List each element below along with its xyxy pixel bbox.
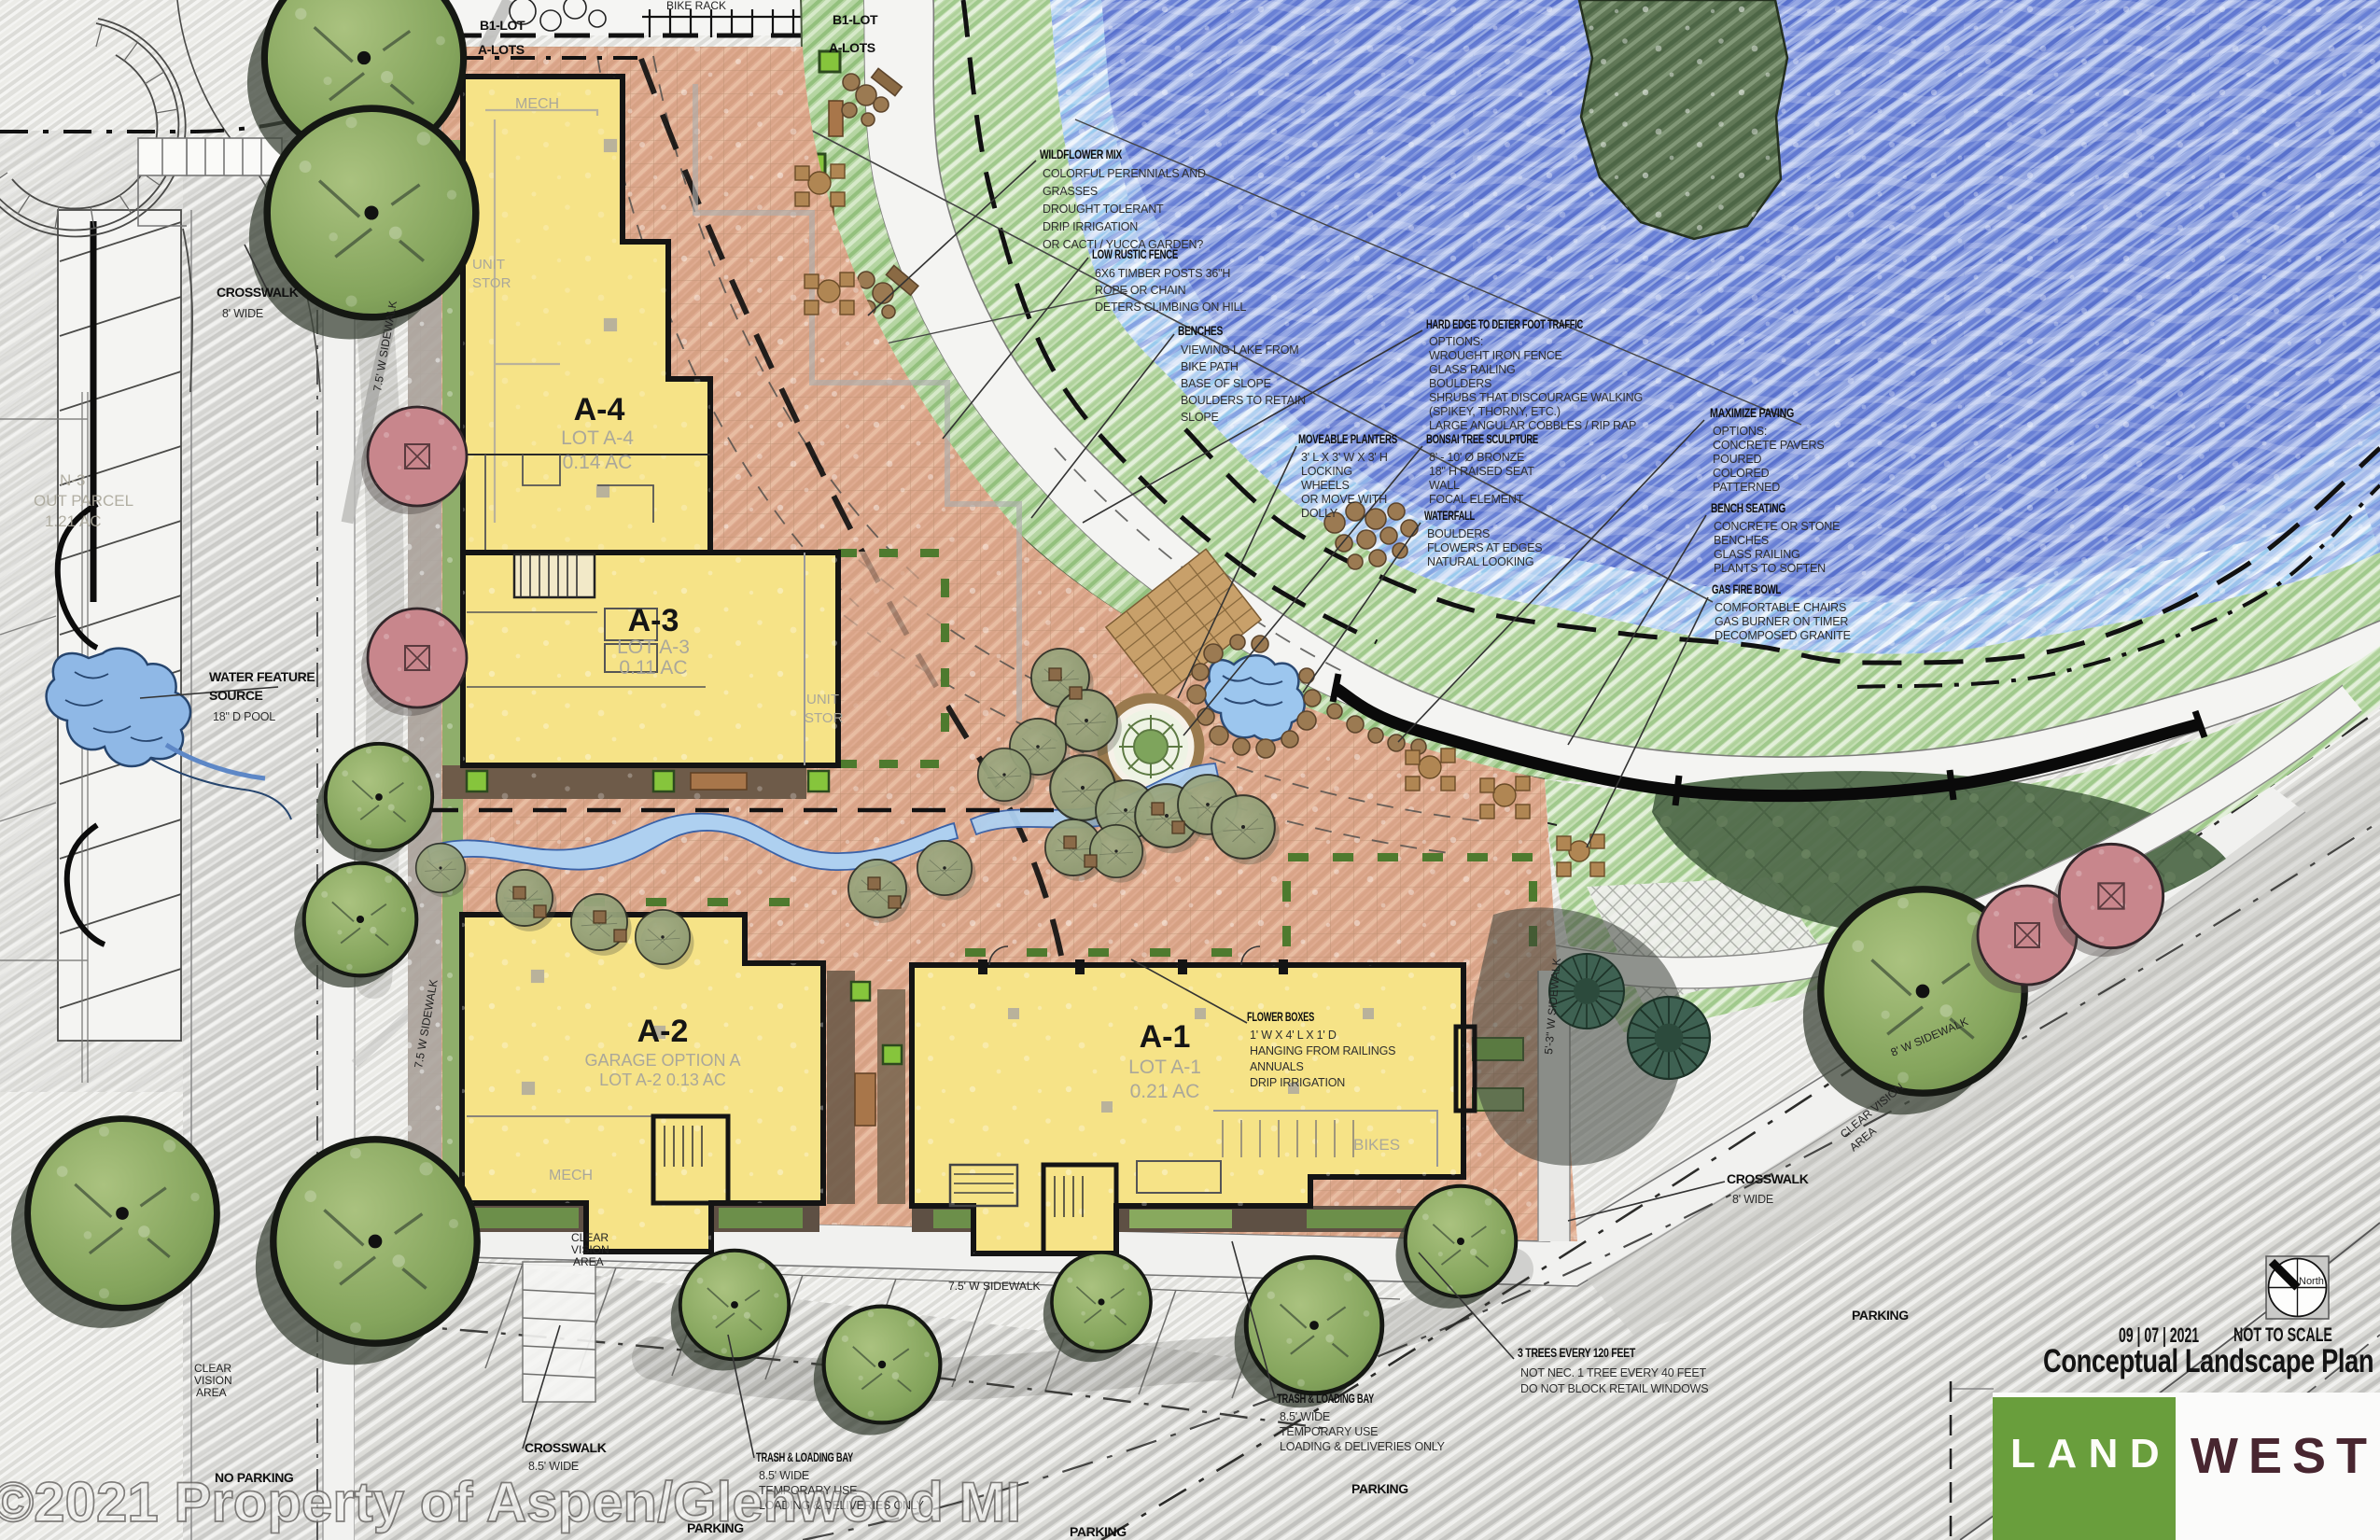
svg-text:PARKING: PARKING — [1351, 1481, 1408, 1496]
svg-text:A-LOTS: A-LOTS — [478, 42, 525, 57]
svg-text:CROSSWALK: CROSSWALK — [1727, 1171, 1809, 1186]
svg-text:Conceptual Landscape Plan: Conceptual Landscape Plan — [2043, 1343, 2373, 1379]
svg-text:UNIT: UNIT — [472, 257, 505, 273]
svg-text:1.21 AC: 1.21 AC — [45, 512, 102, 530]
svg-text:LOT A-2 0.13 AC: LOT A-2 0.13 AC — [599, 1071, 726, 1089]
svg-text:CROSSWALK: CROSSWALK — [525, 1440, 607, 1455]
svg-text:CONCRETE OR STONE: CONCRETE OR STONE — [1714, 520, 1840, 533]
svg-text:A-2: A-2 — [637, 1014, 689, 1049]
svg-text:DROUGHT TOLERANT: DROUGHT TOLERANT — [1043, 203, 1164, 216]
svg-text:North: North — [2299, 1276, 2324, 1287]
svg-text:OPTIONS:: OPTIONS: — [1713, 425, 1767, 438]
svg-text:N-3: N-3 — [60, 471, 85, 489]
svg-text:SLOPE: SLOPE — [1181, 411, 1219, 424]
svg-text:MECH: MECH — [515, 96, 559, 112]
svg-text:8' WIDE: 8' WIDE — [222, 307, 263, 320]
svg-text:FOCAL ELEMENT: FOCAL ELEMENT — [1429, 493, 1524, 506]
svg-text:CROSSWALK: CROSSWALK — [217, 285, 299, 300]
svg-text:B1-LOT: B1-LOT — [833, 12, 878, 27]
svg-text:STOR: STOR — [805, 710, 844, 726]
svg-text:3' L X 3' W X 3' H: 3' L X 3' W X 3' H — [1301, 451, 1388, 464]
svg-text:FLOWER BOXES: FLOWER BOXES — [1247, 1009, 1314, 1024]
svg-text:A-4: A-4 — [574, 392, 625, 427]
svg-text:VISION: VISION — [571, 1243, 609, 1256]
svg-text:WATERFALL: WATERFALL — [1424, 508, 1476, 523]
svg-text:GRASSES: GRASSES — [1043, 185, 1098, 198]
svg-text:LOT A-1: LOT A-1 — [1128, 1057, 1201, 1078]
svg-text:0.21 AC: 0.21 AC — [1130, 1081, 1200, 1102]
svg-text:BOULDERS: BOULDERS — [1427, 527, 1490, 540]
svg-text:SOURCE: SOURCE — [209, 688, 263, 703]
svg-text:A-LOTS: A-LOTS — [829, 40, 875, 55]
svg-text:DO NOT BLOCK RETAIL WINDOWS: DO NOT BLOCK RETAIL WINDOWS — [1520, 1382, 1708, 1395]
svg-text:0.11 AC: 0.11 AC — [619, 657, 687, 679]
svg-text:BOULDERS: BOULDERS — [1429, 377, 1491, 390]
svg-text:6X6 TIMBER POSTS 36"H: 6X6 TIMBER POSTS 36"H — [1095, 267, 1230, 280]
svg-text:PLANTS TO SOFTEN: PLANTS TO SOFTEN — [1714, 562, 1826, 575]
svg-text:GAS BURNER ON TIMER: GAS BURNER ON TIMER — [1715, 615, 1848, 628]
svg-text:LAND: LAND — [2010, 1431, 2171, 1477]
svg-text:18" H RAISED SEAT: 18" H RAISED SEAT — [1429, 465, 1534, 478]
svg-text:A-3: A-3 — [628, 603, 679, 638]
svg-text:LOT A-3: LOT A-3 — [617, 637, 690, 658]
svg-text:BENCH SEATING: BENCH SEATING — [1711, 500, 1785, 515]
svg-text:COMFORTABLE CHAIRS: COMFORTABLE CHAIRS — [1715, 601, 1846, 614]
svg-text:OR MOVE WITH: OR MOVE WITH — [1301, 493, 1387, 506]
svg-text:HANGING FROM RAILINGS: HANGING FROM RAILINGS — [1250, 1044, 1395, 1057]
svg-text:BENCHES: BENCHES — [1178, 323, 1223, 338]
svg-text:TRASH & LOADING BAY: TRASH & LOADING BAY — [756, 1449, 854, 1464]
svg-text:WEST: WEST — [2191, 1428, 2377, 1484]
svg-text:BIKE RACK: BIKE RACK — [666, 0, 726, 12]
svg-text:B1-LOT: B1-LOT — [480, 18, 525, 33]
svg-text:DOLLY: DOLLY — [1301, 507, 1338, 520]
svg-text:WROUGHT IRON FENCE: WROUGHT IRON FENCE — [1429, 349, 1562, 362]
svg-text:COLORFUL PERENNIALS AND: COLORFUL PERENNIALS AND — [1043, 167, 1206, 180]
svg-text:8' - 10' Ø BRONZE: 8' - 10' Ø BRONZE — [1429, 451, 1524, 464]
svg-text:LOADING & DELIVERIES ONLY: LOADING & DELIVERIES ONLY — [1280, 1440, 1446, 1453]
svg-text:PARKING: PARKING — [1852, 1308, 1909, 1323]
svg-text:1' W X 4' L X 1' D: 1' W X 4' L X 1' D — [1250, 1029, 1337, 1042]
svg-text:WALL: WALL — [1429, 479, 1460, 492]
svg-text:PARKING: PARKING — [1070, 1524, 1127, 1539]
svg-text:OUT PARCEL: OUT PARCEL — [34, 492, 133, 510]
svg-text:STOR: STOR — [472, 275, 511, 291]
svg-text:LOCKING: LOCKING — [1301, 465, 1352, 478]
svg-text:CLEAR: CLEAR — [194, 1362, 231, 1375]
svg-text:BASE OF SLOPE: BASE OF SLOPE — [1181, 377, 1271, 390]
svg-text:COLORED: COLORED — [1713, 467, 1770, 480]
svg-text:WHEELS: WHEELS — [1301, 479, 1350, 492]
svg-text:TRASH & LOADING BAY: TRASH & LOADING BAY — [1277, 1391, 1375, 1406]
svg-text:BOULDERS TO RETAIN: BOULDERS TO RETAIN — [1181, 394, 1306, 407]
svg-text:WILDFLOWER MIX: WILDFLOWER MIX — [1040, 147, 1123, 161]
svg-text:CONCRETE PAVERS: CONCRETE PAVERS — [1713, 439, 1824, 452]
svg-text:WATER FEATURE: WATER FEATURE — [209, 669, 315, 684]
svg-text:AREA: AREA — [573, 1255, 604, 1268]
svg-text:DETERS CLIMBING ON HILL: DETERS CLIMBING ON HILL — [1095, 301, 1246, 314]
svg-text:0.14 AC: 0.14 AC — [563, 452, 633, 473]
svg-text:7.5' W SIDEWALK: 7.5' W SIDEWALK — [948, 1280, 1041, 1293]
svg-text:MAXIMIZE PAVING: MAXIMIZE PAVING — [1710, 405, 1794, 420]
svg-text:©2021 Property of Aspen/Glenwo: ©2021 Property of Aspen/Glenwood MI — [0, 1471, 1021, 1533]
svg-text:BONSAI TREE SCULPTURE: BONSAI TREE SCULPTURE — [1426, 431, 1538, 446]
svg-text:ANNUALS: ANNUALS — [1250, 1060, 1304, 1073]
svg-text:8.5' WIDE: 8.5' WIDE — [1280, 1410, 1330, 1423]
svg-text:8' WIDE: 8' WIDE — [1732, 1193, 1773, 1206]
svg-text:DRIP IRRIGATION: DRIP IRRIGATION — [1250, 1076, 1345, 1089]
svg-text:GARAGE OPTION A: GARAGE OPTION A — [584, 1051, 740, 1070]
svg-text:MOVEABLE PLANTERS: MOVEABLE PLANTERS — [1298, 431, 1397, 446]
svg-text:MECH: MECH — [549, 1168, 593, 1183]
svg-text:GAS FIRE BOWL: GAS FIRE BOWL — [1712, 581, 1782, 596]
svg-text:FLOWERS AT EDGES: FLOWERS AT EDGES — [1427, 541, 1542, 554]
svg-text:DRIP IRRIGATION: DRIP IRRIGATION — [1043, 220, 1138, 233]
svg-text:DECOMPOSED GRANITE: DECOMPOSED GRANITE — [1715, 629, 1851, 642]
svg-text:NOT NEC. 1 TREE EVERY 40 FEET: NOT NEC. 1 TREE EVERY 40 FEET — [1520, 1366, 1706, 1379]
svg-text:LOW RUSTIC FENCE: LOW RUSTIC FENCE — [1092, 246, 1178, 261]
svg-text:BIKES: BIKES — [1353, 1136, 1400, 1154]
svg-text:VISION: VISION — [194, 1374, 232, 1387]
svg-text:OPTIONS:: OPTIONS: — [1429, 335, 1483, 348]
svg-text:BENCHES: BENCHES — [1714, 534, 1769, 547]
svg-text:VIEWING LAKE FROM: VIEWING LAKE FROM — [1181, 343, 1298, 357]
svg-text:3 TREES EVERY 120 FEET: 3 TREES EVERY 120 FEET — [1518, 1345, 1636, 1360]
svg-text:GLASS RAILING: GLASS RAILING — [1429, 363, 1516, 376]
svg-text:AREA: AREA — [196, 1386, 227, 1399]
svg-text:(SPIKEY, THORNY, ETC.): (SPIKEY, THORNY, ETC.) — [1429, 405, 1561, 418]
svg-text:ROPE OR CHAIN: ROPE OR CHAIN — [1095, 284, 1186, 297]
svg-text:HARD EDGE TO DETER FOOT TRAFFI: HARD EDGE TO DETER FOOT TRAFFIC — [1426, 316, 1583, 331]
svg-text:TEMPORARY USE: TEMPORARY USE — [1280, 1425, 1378, 1438]
svg-text:SHRUBS THAT DISCOURAGE WALKING: SHRUBS THAT DISCOURAGE WALKING — [1429, 391, 1643, 404]
svg-text:PATTERNED: PATTERNED — [1713, 481, 1780, 494]
svg-text:A-1: A-1 — [1140, 1019, 1191, 1055]
svg-text:BIKE PATH: BIKE PATH — [1181, 360, 1239, 373]
svg-text:18" D POOL: 18" D POOL — [213, 710, 275, 723]
svg-text:NATURAL LOOKING: NATURAL LOOKING — [1427, 555, 1533, 568]
svg-text:GLASS RAILING: GLASS RAILING — [1714, 548, 1800, 561]
svg-text:LARGE ANGULAR COBBLES / RIP RA: LARGE ANGULAR COBBLES / RIP RAP — [1429, 419, 1636, 432]
svg-text:POURED: POURED — [1713, 453, 1761, 466]
svg-text:CLEAR: CLEAR — [571, 1231, 609, 1244]
svg-text:LOT A-4: LOT A-4 — [561, 427, 634, 449]
svg-text:UNIT: UNIT — [806, 692, 839, 707]
